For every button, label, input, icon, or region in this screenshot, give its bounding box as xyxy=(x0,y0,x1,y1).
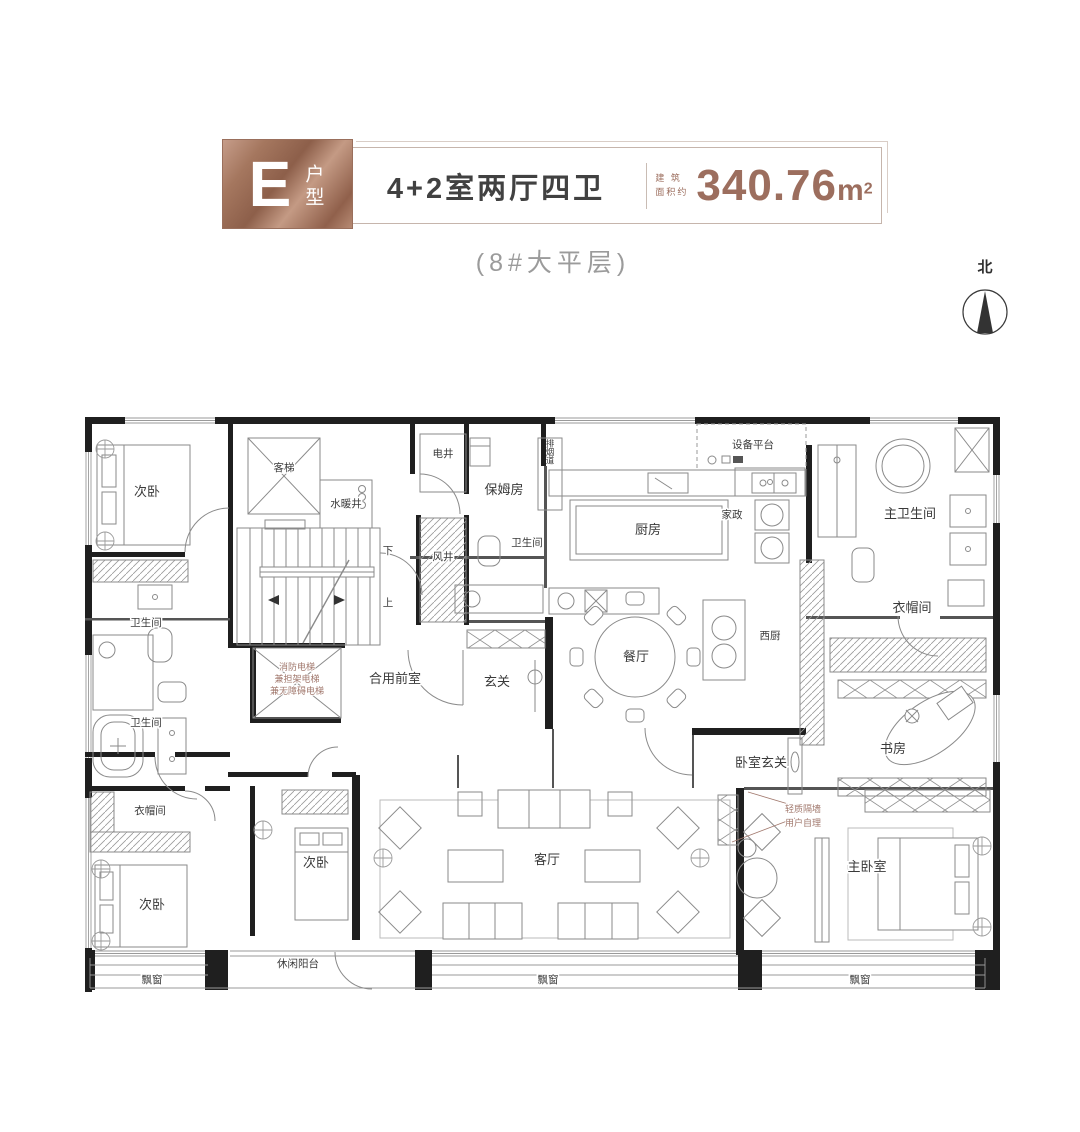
elevator-note-3: 兼无障碍电梯 xyxy=(270,685,324,696)
room-label-equipment-platform: 设备平台 xyxy=(732,438,774,451)
room-label-master-bathroom: 主卫生间 xyxy=(884,506,936,521)
room-label-bedroom-foyer: 卧室玄关 xyxy=(735,755,787,770)
room-label-leisure-balcony: 休闲阳台 xyxy=(277,957,319,970)
west-kitchen-island xyxy=(703,600,745,680)
master-bedroom-furniture xyxy=(737,814,978,942)
room-label-nanny-room: 保姆房 xyxy=(484,482,523,497)
room-label-west-kitchen: 西厨 xyxy=(760,630,781,642)
area-label: 建 筑 面积约 xyxy=(655,172,688,199)
room-label-water-heating-shaft: 水暖井 xyxy=(330,497,362,510)
bedroom-bottom-mid-furniture xyxy=(295,828,348,920)
outer-walls xyxy=(85,417,1000,992)
room-label-kitchen: 厨房 xyxy=(635,522,661,537)
unit-letter: E xyxy=(249,152,292,216)
room-label-bedroom-bottom-left: 次卧 xyxy=(139,897,165,912)
room-label-cloakroom-right: 衣帽间 xyxy=(892,600,931,615)
room-label-bedroom-top-left: 次卧 xyxy=(134,484,160,499)
room-label-bay-window-left: 飘窗 xyxy=(142,973,163,986)
room-label-cloakroom-bottom-left: 衣帽间 xyxy=(134,804,166,817)
compass-icon xyxy=(952,277,1018,341)
room-label-bedroom-bottom-mid: 次卧 xyxy=(303,855,329,870)
floorplan-page: E 户型 4+2室两厅四卫 建 筑 面积约 340.76m2 (8#大平层) 北 xyxy=(0,0,1080,1132)
partition-note-1: 轻质隔墙 xyxy=(785,803,821,814)
foyer-fixtures xyxy=(408,630,545,712)
room-label-dining-room: 餐厅 xyxy=(623,649,649,664)
room-label-bay-window-mid: 飘窗 xyxy=(538,973,559,986)
room-label-living-room: 客厅 xyxy=(534,852,560,867)
room-label-housekeeping: 家政 xyxy=(722,508,743,521)
layout-label: 4+2室两厅四卫 xyxy=(346,165,646,207)
spec-box: 4+2室两厅四卫 建 筑 面积约 340.76m2 xyxy=(345,147,882,224)
north-compass: 北 xyxy=(952,256,1018,346)
room-label-foyer: 玄关 xyxy=(484,674,510,689)
room-label-study: 书房 xyxy=(880,741,906,756)
room-label-bay-window-right: 飘窗 xyxy=(850,973,871,986)
room-label-smoke-duct: 排烟道 xyxy=(545,439,555,466)
area-block: 建 筑 面积约 340.76m2 xyxy=(647,161,881,211)
unit-type-label: 户型 xyxy=(299,164,326,210)
room-label-electric-shaft: 电井 xyxy=(433,447,454,460)
room-label-passenger-elevator: 客梯 xyxy=(274,461,295,474)
stairs-down-label: 下 xyxy=(383,545,394,557)
room-label-master-bedroom: 主卧室 xyxy=(847,859,886,874)
area-value: 340.76m2 xyxy=(696,161,872,211)
partition-note-2: 用户自理 xyxy=(785,817,821,828)
room-label-bathroom-top-left: 卫生间 xyxy=(130,616,162,629)
master-bathroom-fixtures xyxy=(818,428,989,582)
unit-badge: E 户型 xyxy=(222,139,353,229)
elevator-note-1: 消防电梯 xyxy=(279,661,315,672)
elevator-note-2: 兼担架电梯 xyxy=(274,673,319,684)
stairs xyxy=(237,528,380,645)
room-label-bathroom-mid: 卫生间 xyxy=(511,536,543,549)
room-label-bathroom-left: 卫生间 xyxy=(130,716,162,729)
room-label-shared-front-room: 合用前室 xyxy=(369,671,421,686)
left-bathrooms xyxy=(93,560,188,777)
north-label: 北 xyxy=(952,256,1018,277)
stairs-up-label: 上 xyxy=(383,597,394,609)
room-label-air-shaft: 风井 xyxy=(433,550,454,563)
